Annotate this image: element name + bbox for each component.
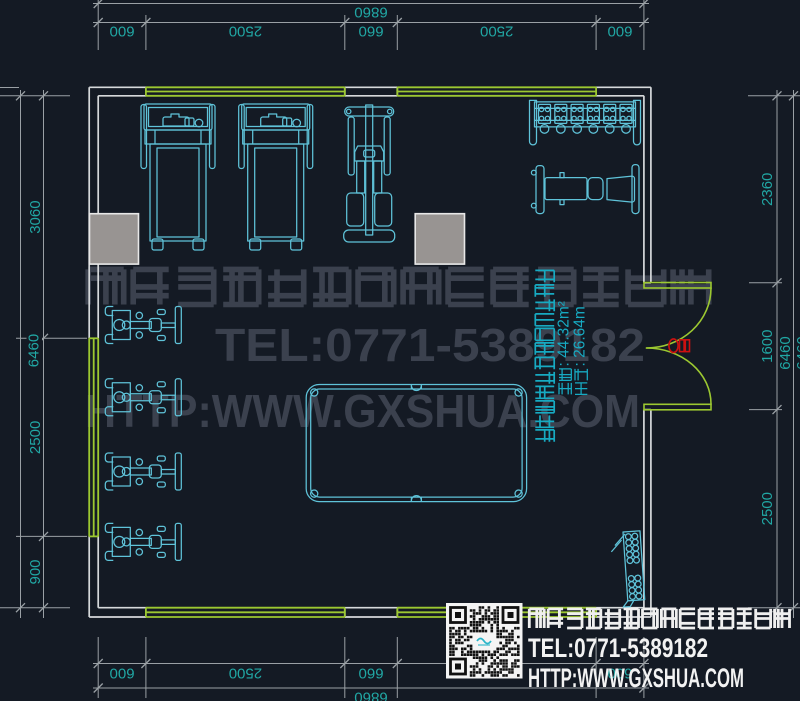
svg-text:2360: 2360: [759, 173, 776, 206]
svg-text:6860: 6860: [354, 3, 387, 20]
svg-text:6460: 6460: [26, 334, 43, 367]
svg-text:900: 900: [27, 559, 44, 584]
svg-text:3060: 3060: [27, 200, 44, 233]
svg-text:2500: 2500: [229, 23, 262, 40]
svg-text:2500: 2500: [480, 23, 513, 40]
svg-text:1600: 1600: [759, 330, 776, 363]
svg-text:2500: 2500: [229, 665, 262, 682]
svg-text:: 44.32m²: : 44.32m²: [556, 301, 573, 366]
svg-text:HTTP:WWW.GXSHUA.COM: HTTP:WWW.GXSHUA.COM: [528, 663, 744, 693]
svg-text:600: 600: [110, 23, 135, 40]
svg-text:6860: 6860: [354, 689, 387, 701]
svg-text:660: 660: [359, 665, 384, 682]
svg-text:600: 600: [607, 23, 632, 40]
svg-text:: 26.64m: : 26.64m: [572, 306, 589, 366]
svg-text:HTTP:WWW.GXSHUA.COM: HTTP:WWW.GXSHUA.COM: [85, 385, 640, 437]
svg-text:2500: 2500: [27, 421, 44, 454]
svg-text:6460: 6460: [794, 336, 800, 369]
svg-text:6460: 6460: [777, 336, 794, 369]
svg-text:660: 660: [359, 23, 384, 40]
svg-text:2500: 2500: [759, 492, 776, 525]
svg-text:TEL:0771-5389182: TEL:0771-5389182: [528, 633, 708, 663]
svg-text:600: 600: [110, 665, 135, 682]
